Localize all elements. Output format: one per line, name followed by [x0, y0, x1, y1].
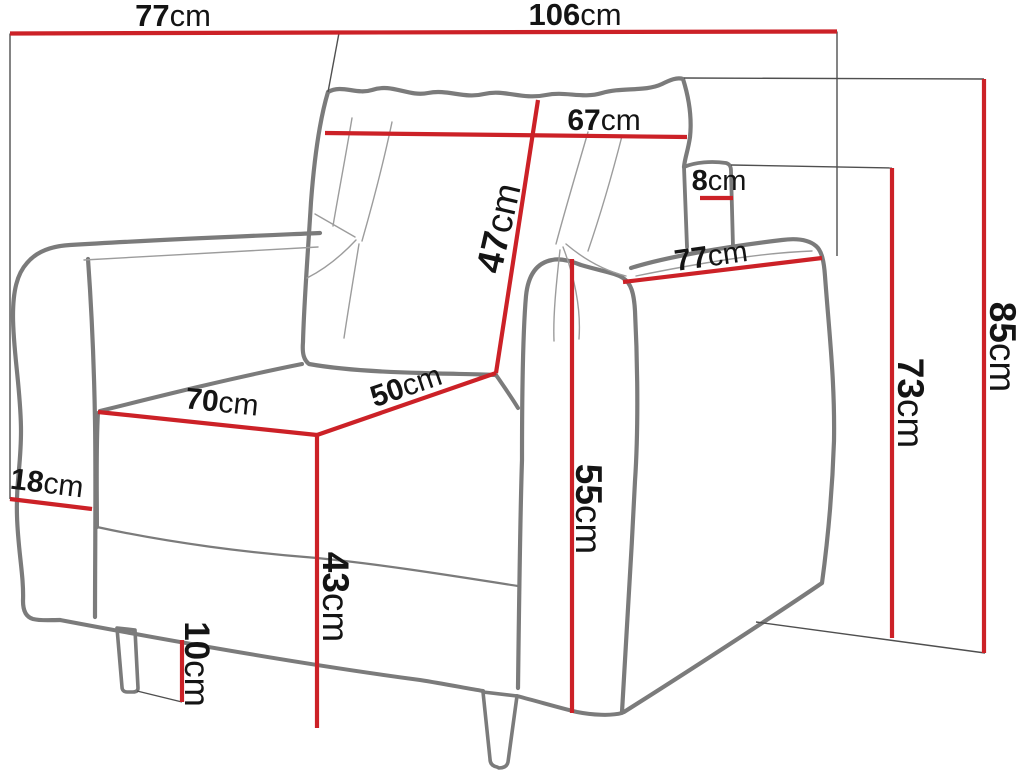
dimension-label-top-width-total: 106cm [528, 0, 621, 32]
dimension-line-top-width-total [339, 32, 837, 33]
dimension-label-leg-height: 10cm [178, 621, 217, 707]
dimension-label-seat-front-height: 43cm [316, 552, 357, 642]
dimension-label-backrest-height: 73cm [891, 358, 932, 448]
dimension-label-armrest-front-height: 55cm [569, 464, 610, 554]
dimension-diagram: 77cm106cm67cm8cm77cm47cm50cm70cm18cm43cm… [0, 0, 1020, 784]
armchair-diagram-canvas: 77cm106cm67cm8cm77cm47cm50cm70cm18cm43cm… [0, 0, 1020, 784]
dimension-label-top-depth: 77cm [135, 0, 211, 33]
guide-line-total-height-ref [684, 78, 984, 79]
dimension-label-back-cushion-width: 67cm [567, 104, 640, 137]
dimension-line-top-depth [10, 33, 339, 34]
dimension-label-total-height: 85cm [983, 302, 1020, 392]
dimension-label-backrest-side-thickness: 8cm [692, 165, 747, 197]
